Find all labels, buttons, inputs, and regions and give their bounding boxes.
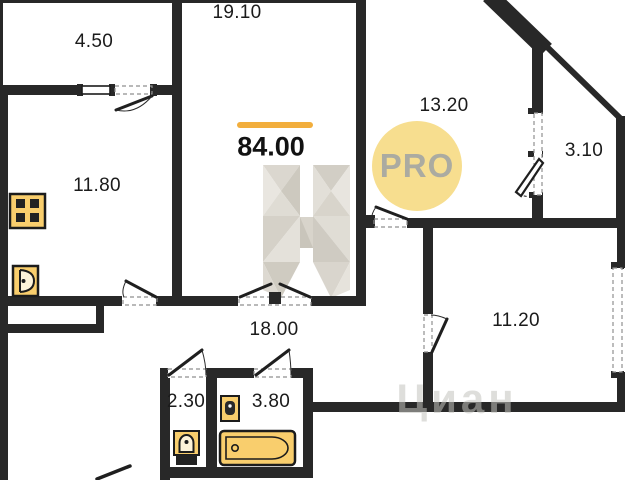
room-label-kitchen: 11.80 xyxy=(73,175,121,197)
door-leaf-bathroom xyxy=(256,350,289,375)
room-label-bathroom: 3.80 xyxy=(252,391,290,413)
watermark-cian: Циан xyxy=(396,375,517,423)
door-opening-kitchen xyxy=(123,297,157,305)
window-balcony-right xyxy=(534,113,542,195)
door-opening-balcony-kitchen xyxy=(115,86,152,94)
door-leaf-wc xyxy=(169,350,202,375)
total-area-label: 84.00 xyxy=(237,132,305,163)
room-label-hallway: 18.00 xyxy=(249,319,298,341)
room-label-balcony-right: 3.10 xyxy=(565,140,603,162)
sink-icon xyxy=(221,396,239,421)
total-area-underline xyxy=(237,122,313,128)
toilet-icon xyxy=(174,431,199,465)
window-room-bottom-right xyxy=(613,268,622,372)
watermark-h-logo xyxy=(263,165,350,298)
door-leaf-room-bottom xyxy=(432,319,447,352)
room-label-wc: 2.30 xyxy=(167,391,205,413)
pro-badge: PRO xyxy=(372,121,462,211)
room-label-room-right: 13.20 xyxy=(419,95,468,117)
door-leaf-balcony-kitchen xyxy=(116,96,152,110)
door-opening-room-right xyxy=(374,219,407,227)
walls-thin xyxy=(0,0,366,90)
room-label-balcony-top-left: 4.50 xyxy=(75,31,113,53)
room-label-room-bottom-right: 11.20 xyxy=(492,310,540,332)
stove-icon xyxy=(10,194,45,228)
diagonal-walls xyxy=(489,0,624,122)
door-leaf-entrance xyxy=(97,466,130,479)
kitchen-sink-icon xyxy=(13,266,38,296)
floor-plan-image: 4.50 19.10 13.20 3.10 11.80 18.00 11.20 … xyxy=(0,0,625,480)
bathtub-icon xyxy=(220,431,295,465)
floor-plan-drawing xyxy=(0,0,625,480)
window-balcony-top-left xyxy=(82,86,110,94)
room-label-room-top-center: 19.10 xyxy=(212,2,261,24)
windows xyxy=(82,86,622,372)
door-leaf-kitchen xyxy=(126,281,156,297)
pro-badge-label: PRO xyxy=(380,147,455,185)
double-door-hinge xyxy=(269,292,281,304)
door-opening-room-bottom xyxy=(424,315,432,352)
